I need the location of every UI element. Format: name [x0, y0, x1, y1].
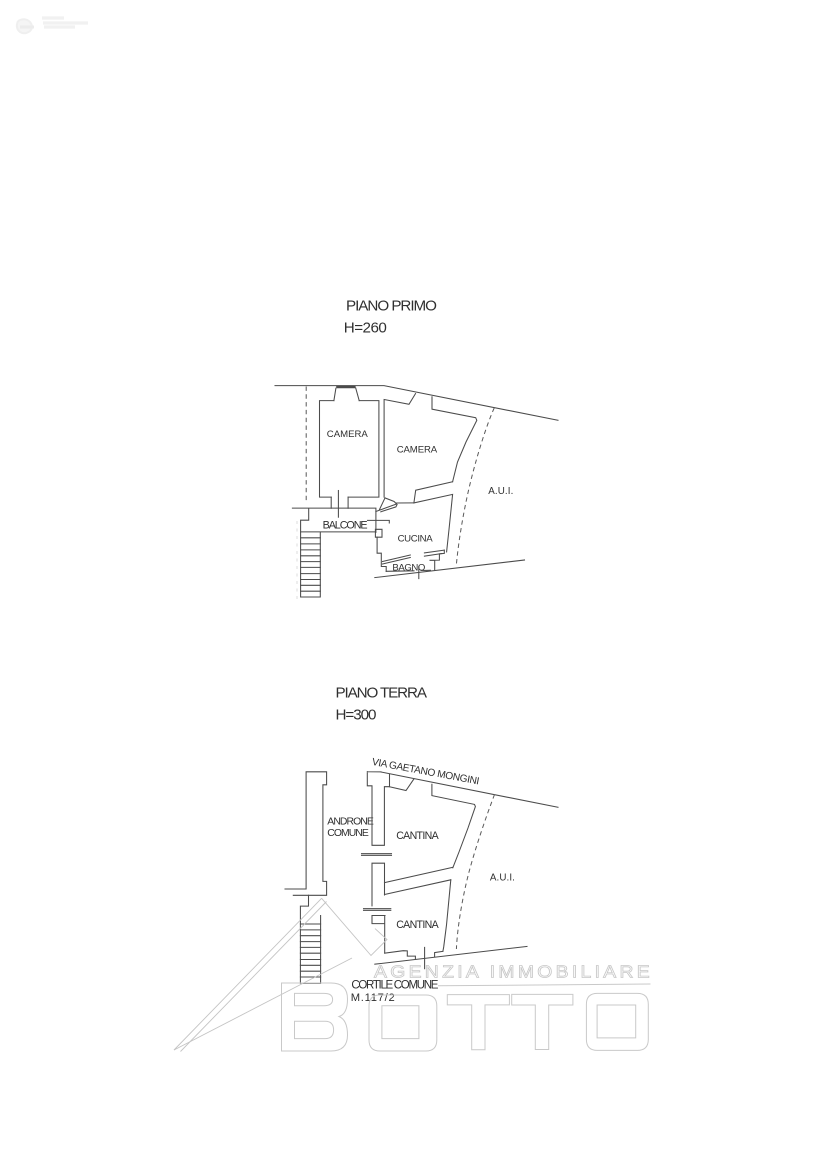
- svg-text:CANTINA: CANTINA: [396, 919, 439, 931]
- svg-text:CANTINA: CANTINA: [396, 830, 439, 842]
- svg-text:AGENZIA IMMOBILIARE: AGENZIA IMMOBILIARE: [374, 962, 653, 982]
- svg-text:H=260: H=260: [344, 320, 387, 337]
- svg-text:CAMERA: CAMERA: [327, 429, 369, 440]
- svg-text:A.U.I.: A.U.I.: [488, 486, 513, 497]
- svg-text:PIANO PRIMO: PIANO PRIMO: [346, 298, 437, 315]
- svg-text:CUCINA: CUCINA: [398, 534, 434, 545]
- svg-text:CAMERA: CAMERA: [397, 445, 438, 456]
- svg-text:ANDRONE: ANDRONE: [327, 817, 374, 828]
- svg-text:COMUNE: COMUNE: [327, 828, 369, 839]
- svg-text:PIANO TERRA: PIANO TERRA: [336, 684, 428, 701]
- svg-text:M.117/2: M.117/2: [351, 992, 395, 1004]
- svg-text:H=300: H=300: [336, 706, 377, 723]
- svg-text:A.U.I.: A.U.I.: [490, 873, 515, 884]
- svg-text:BALCONE: BALCONE: [323, 519, 368, 531]
